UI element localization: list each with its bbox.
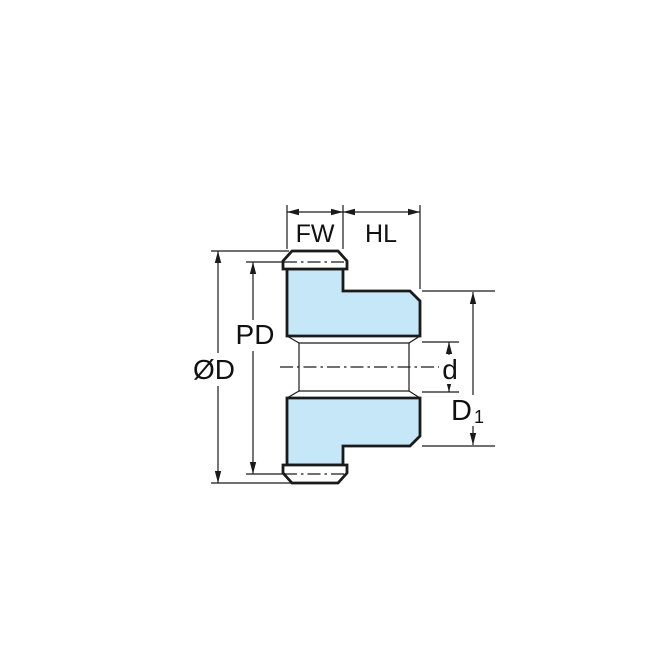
gear-body-lower (287, 398, 420, 465)
arrowhead-pd-top (250, 262, 256, 274)
label-d1-subscript: 1 (474, 407, 484, 427)
arrowhead-d1-top (470, 292, 476, 304)
label-od: ØD (193, 354, 235, 385)
technical-drawing-canvas: FW HL ØD PD d (0, 0, 670, 670)
arrowhead-fw-left (287, 209, 299, 216)
arrowhead-od-top (215, 251, 221, 263)
label-fw: FW (296, 220, 335, 248)
arrowhead-d1-bottom (470, 433, 476, 445)
dim-pd: PD (236, 262, 275, 474)
label-d1-main: D (451, 395, 472, 427)
label-pd: PD (236, 319, 275, 350)
arrowhead-hl-left (343, 209, 355, 216)
gear-tooth-top (283, 251, 347, 269)
arrowhead-hl-right (408, 209, 420, 216)
arrowhead-fw-right (331, 209, 343, 216)
label-d: d (442, 354, 458, 385)
label-hl: HL (365, 220, 397, 248)
gear-body-upper (287, 269, 420, 336)
gear-dimension-drawing: FW HL ØD PD d (0, 0, 670, 670)
arrowhead-pd-bottom (250, 462, 256, 474)
arrowhead-od-bottom (215, 471, 221, 483)
arrowhead-d-top (446, 342, 452, 354)
